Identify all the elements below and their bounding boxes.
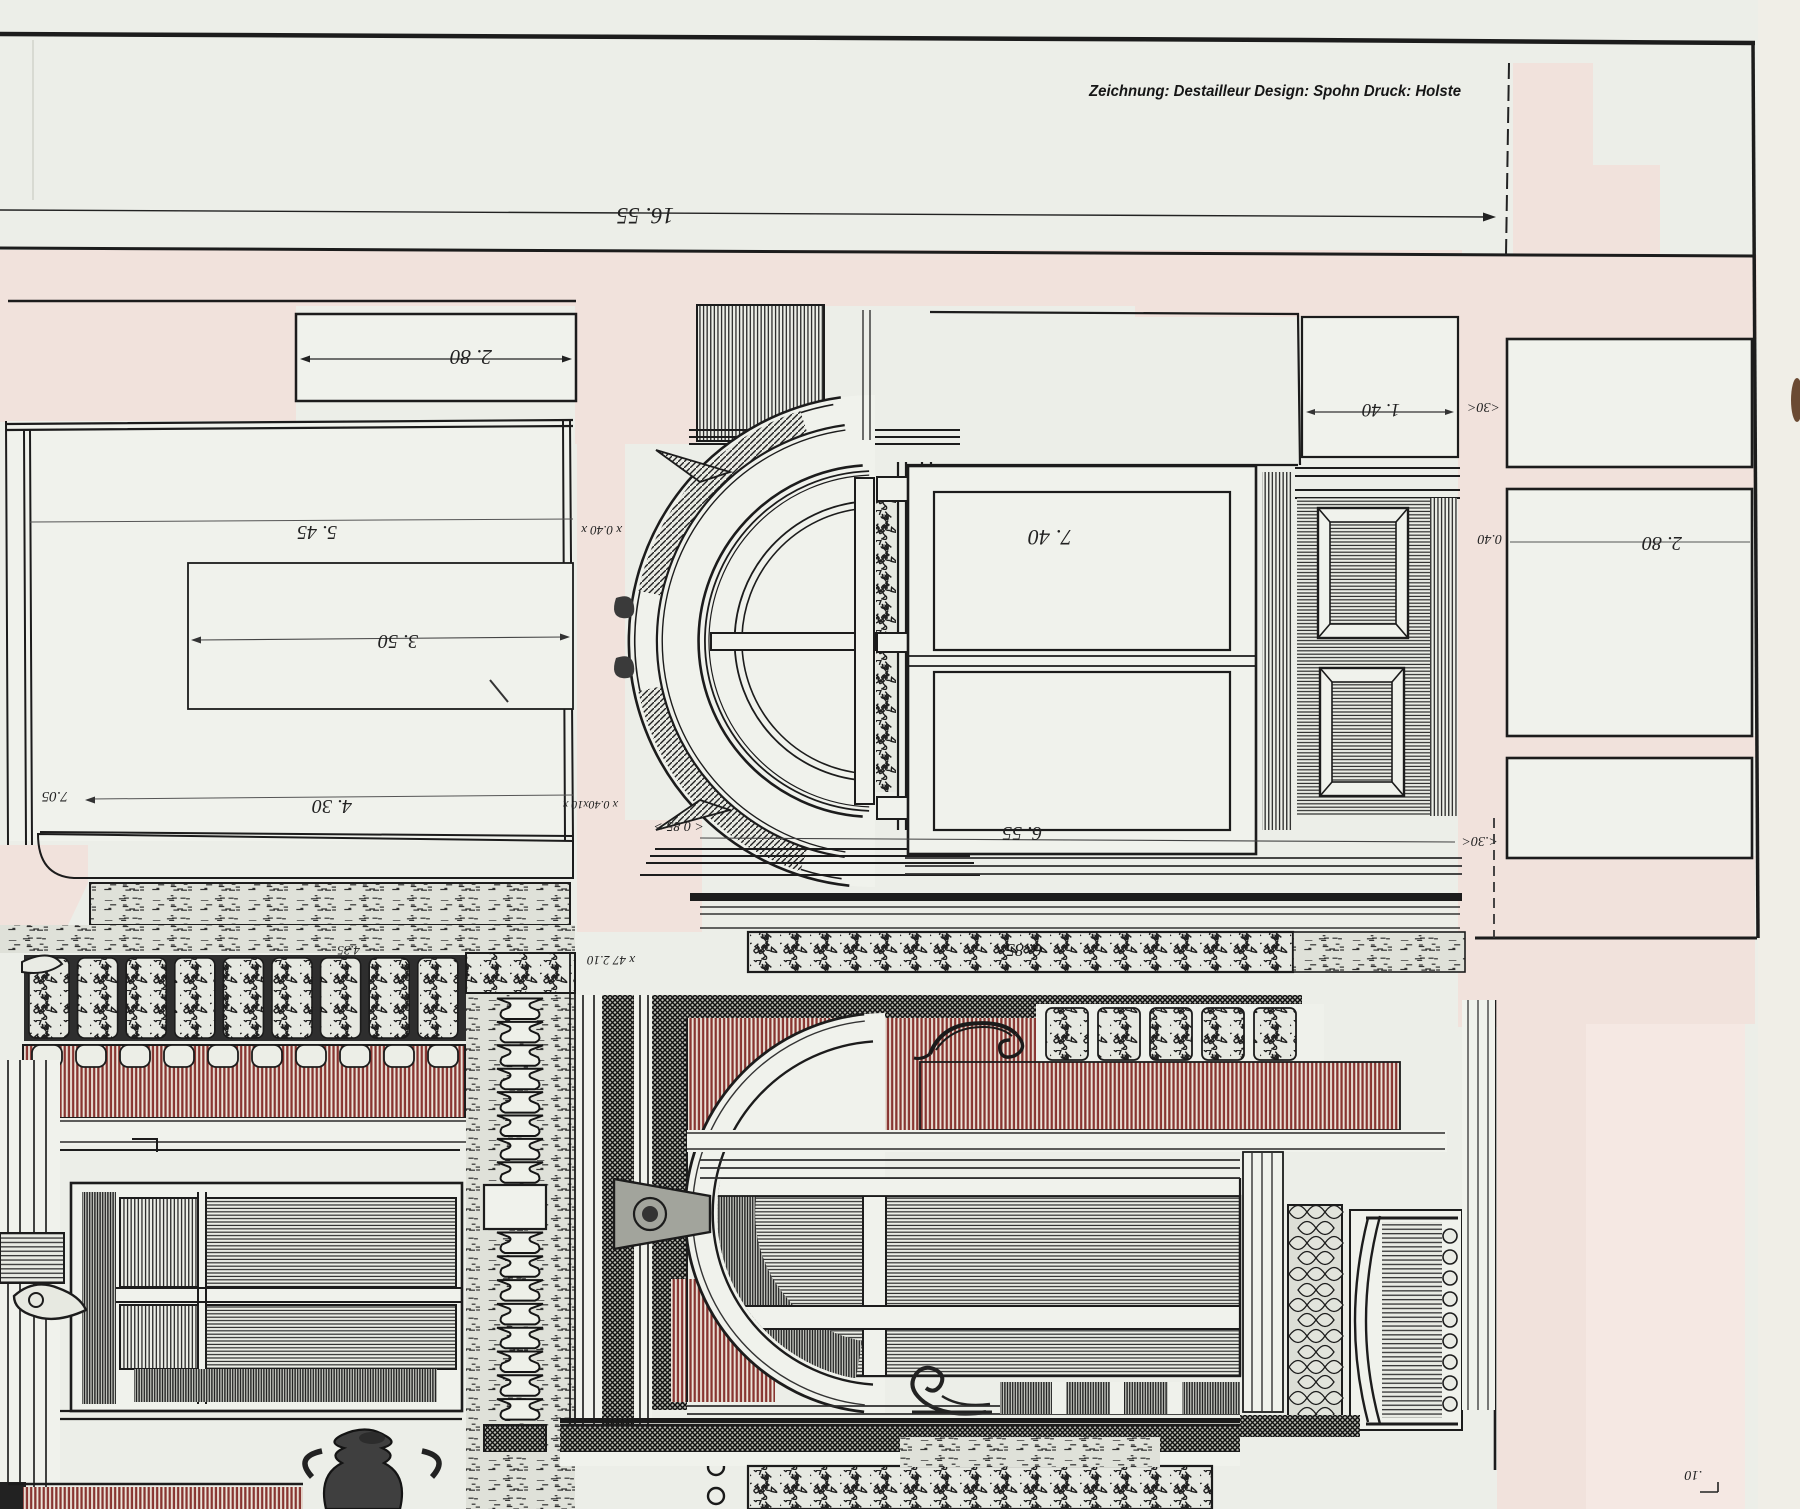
svg-text:7.05: 7.05: [41, 788, 68, 804]
svg-text:.10: .10: [1685, 1467, 1703, 1482]
svg-text:16. 55: 16. 55: [617, 203, 675, 228]
svg-text:x 0.40x10 x: x 0.40x10 x: [562, 798, 619, 812]
svg-text:1. 40: 1. 40: [1362, 399, 1401, 420]
svg-text:4. 30: 4. 30: [312, 795, 352, 817]
svg-text:x 47 2.10: x 47 2.10: [586, 953, 636, 968]
svg-text:5. 45: 5. 45: [297, 521, 337, 543]
svg-text:7. 40: 7. 40: [1028, 525, 1072, 550]
svg-text:2. 80: 2. 80: [1642, 532, 1682, 554]
svg-text:< 0.85 >: < 0.85 >: [654, 818, 704, 833]
svg-text:<.30<: <.30<: [1462, 833, 1498, 848]
svg-text:Zeichnung: Destailleur Design: Zeichnung: Destailleur Design: Spohn Dru…: [1088, 83, 1461, 100]
svg-text:0.40: 0.40: [1478, 531, 1503, 546]
svg-text:6. 55: 6. 55: [1002, 822, 1042, 844]
svg-text:x 0.40 x: x 0.40 x: [581, 523, 623, 538]
svg-text:6. 85: 6. 85: [1006, 940, 1042, 960]
svg-text:2. 80: 2. 80: [450, 345, 493, 369]
svg-text:<30<: <30<: [1467, 399, 1500, 414]
svg-text:3. 50: 3. 50: [378, 630, 419, 652]
